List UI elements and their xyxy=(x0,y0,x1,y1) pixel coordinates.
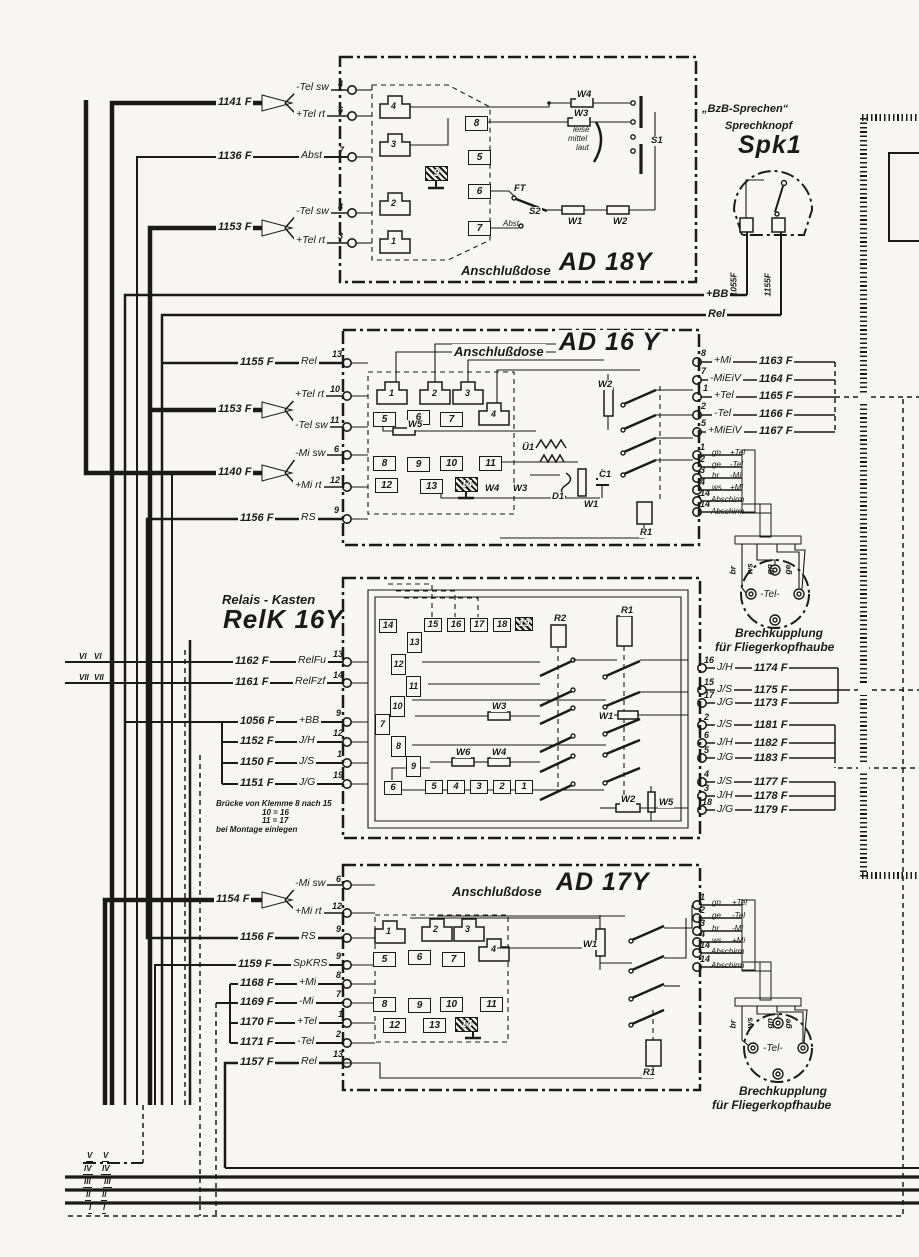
bus-mark: III xyxy=(83,1178,92,1188)
wire-color: br xyxy=(710,472,721,481)
signal-label: -MiEiV xyxy=(708,373,743,385)
wire-color: gn xyxy=(710,899,723,908)
pin-number: 2 xyxy=(336,1030,341,1039)
signal-label: J/H xyxy=(715,737,735,749)
pin-number: 7 xyxy=(701,367,706,376)
ad16y-internals xyxy=(368,344,693,538)
cable-label: 1183 F xyxy=(752,752,789,764)
kupplung-center-label: -Tel- xyxy=(761,1043,785,1054)
terminal-box-grounded: 14 xyxy=(455,477,478,492)
signal-label: +Mi xyxy=(730,937,747,946)
terminal-box: 6 xyxy=(384,781,402,795)
resistor-label: W1 xyxy=(582,940,598,950)
spk1-name: Spk1 xyxy=(735,133,805,158)
signal-label: -Mi xyxy=(297,996,316,1008)
wire-color: br xyxy=(729,566,738,575)
volume-step-label: mittel xyxy=(567,135,588,143)
bus-mark: IV xyxy=(101,1165,111,1175)
bus-mark: I xyxy=(88,1204,92,1214)
kupplung-caption: für Fliegerkopfhaube xyxy=(710,1098,833,1112)
pin-number: 7 xyxy=(339,146,344,155)
plug-number: 2 xyxy=(432,389,437,398)
terminal-box: 7 xyxy=(468,221,491,236)
pin-number: 1 xyxy=(703,384,708,393)
cable-label: 1156 F xyxy=(238,512,275,524)
signal-label: Abschirm xyxy=(709,948,746,957)
pin-number: 4 xyxy=(338,203,343,212)
box-title-prefix: Anschlußdose xyxy=(452,344,546,359)
cable-label: 1154 F xyxy=(214,893,251,905)
terminal-box: 8 xyxy=(373,997,396,1012)
terminal-box: 7 xyxy=(440,412,463,427)
pin-number: 2 xyxy=(704,713,709,722)
pin-number: 6 xyxy=(338,106,343,115)
cable-label: 1175 F xyxy=(752,684,789,696)
signal-label: Abschirm xyxy=(709,962,746,971)
bus-mark: VI xyxy=(93,653,103,663)
relay-label: R1 xyxy=(642,1068,656,1078)
signal-label: J/G xyxy=(715,697,735,709)
spk1-switch xyxy=(734,171,812,315)
hatch-gap xyxy=(858,763,869,773)
pin-number: 4 xyxy=(338,80,343,89)
cable-label: 1182 F xyxy=(752,737,789,749)
resistor-label: W2 xyxy=(620,795,636,805)
kupplung-caption: Brechkupplung xyxy=(737,1084,829,1098)
terminal-box: 9 xyxy=(408,998,431,1013)
terminal-box-grounded: 19 xyxy=(515,617,533,631)
pin-number: 10 xyxy=(330,385,340,394)
pin-number: 13 xyxy=(333,650,343,659)
signal-label: J/H xyxy=(715,662,735,674)
relay-label: R2 xyxy=(553,614,567,624)
cable-label: 1161 F xyxy=(233,676,270,688)
signal-label: -Tel sw xyxy=(293,420,330,432)
signal-label: -Tel sw xyxy=(294,206,331,218)
box-title: AD 18Y xyxy=(556,250,656,275)
terminal-box: 5 xyxy=(373,412,396,427)
relk-title: RelK 16Y xyxy=(220,606,347,632)
pin-stubs xyxy=(351,90,375,1043)
signal-label: +Mi xyxy=(297,977,318,989)
pin-number: 7 xyxy=(336,990,341,999)
signal-label: Abschirm xyxy=(709,508,746,517)
cable-label: 1179 F xyxy=(752,804,789,816)
plug-number: 2 xyxy=(433,925,438,934)
signal-label: -Tel xyxy=(712,408,733,420)
plug-number: 4 xyxy=(491,945,496,954)
signal-label: -Tel xyxy=(728,461,745,470)
spk1-quote: „BzB-Sprechen“ xyxy=(700,103,790,115)
signal-label: J/H xyxy=(297,735,317,747)
terminal-box: 11 xyxy=(480,997,503,1012)
kupplung-center-label: -Tel- xyxy=(758,589,782,600)
terminal-box: 12 xyxy=(375,478,398,493)
wire-color: gn xyxy=(710,449,723,458)
signal-label: -Tel sw xyxy=(294,82,331,94)
terminal-box: 9 xyxy=(406,756,421,777)
pin-number: 8 xyxy=(701,349,706,358)
cable-label: 1164 F xyxy=(757,373,794,385)
hatch-gap xyxy=(858,394,869,404)
terminal-box: 5 xyxy=(425,780,443,794)
mounting-note: bei Montage einlegen xyxy=(216,825,297,835)
cable-label: 1155 F xyxy=(238,356,275,368)
wire-color: gn xyxy=(766,564,775,574)
bus-rel-label: Rel xyxy=(706,308,727,320)
cable-label: 1156 F xyxy=(238,931,275,943)
signal-label: +Mi rt xyxy=(293,906,324,918)
bus-mark: I xyxy=(102,1204,106,1214)
plug-number: 3 xyxy=(391,140,396,149)
terminal-box: 5 xyxy=(373,952,396,967)
wire-color: ws xyxy=(710,937,724,946)
plug-number: 4 xyxy=(391,102,396,111)
ad17y-internals xyxy=(343,905,692,1078)
pin-number: 12 xyxy=(333,729,343,738)
terminal-pins-filled xyxy=(343,497,706,971)
cable-label: 1136 F xyxy=(216,150,253,162)
signal-label: +Mi xyxy=(712,355,733,367)
relay-label: R1 xyxy=(620,606,634,616)
terminal-box: 15 xyxy=(424,618,442,632)
signal-label: J/H xyxy=(715,790,735,802)
cable-label: 1152 F xyxy=(238,735,275,747)
signal-label: +Tel rt xyxy=(294,235,327,247)
switch-label: S1 xyxy=(650,136,664,146)
terminal-box: 5 xyxy=(468,150,491,165)
pin-number: 9 xyxy=(336,925,341,934)
spk1-cable-left: 1055F xyxy=(730,272,739,296)
terminal-box: 2 xyxy=(493,780,511,794)
plug-number: 1 xyxy=(389,389,394,398)
cable-label: 1151 F xyxy=(238,777,275,789)
terminal-box-grounded: 14 xyxy=(455,1017,478,1032)
cable-label: 1177 F xyxy=(752,776,789,788)
plug-number: 1 xyxy=(391,237,396,246)
terminal-box: 12 xyxy=(383,1018,406,1033)
wire-color: ge xyxy=(710,461,723,470)
resistor-label: W6 xyxy=(455,748,471,758)
terminal-box: 9 xyxy=(407,457,430,472)
resistor-label: W3 xyxy=(573,109,589,119)
signal-label: Rel xyxy=(299,356,319,368)
pin-number: 1 xyxy=(338,1010,343,1019)
pin-number: 1 xyxy=(337,750,342,759)
pin-number: 12 xyxy=(332,902,342,911)
pin-number: 6 xyxy=(704,731,709,740)
pin-number: 15 xyxy=(704,678,714,687)
plug-number: 4 xyxy=(491,410,496,419)
wire-color: br xyxy=(729,1020,738,1029)
cable-label: 1167 F xyxy=(757,425,794,437)
pin-number: 9 xyxy=(336,709,341,718)
signal-label: -Tel xyxy=(295,1036,316,1048)
signal-label: RS xyxy=(299,931,318,943)
adjacent-unit-box xyxy=(888,152,919,242)
signal-label: -Mi sw xyxy=(293,448,327,460)
switch-label: S2 xyxy=(528,207,542,217)
signal-label: J/S xyxy=(715,684,734,696)
pin-number: 6 xyxy=(334,445,339,454)
signal-label: Abschirm xyxy=(709,496,746,505)
box-title: AD 17Y xyxy=(553,870,653,895)
cable-label: 1150 F xyxy=(238,756,275,768)
plug-number: 3 xyxy=(465,925,470,934)
signal-label: SpKRS xyxy=(291,958,329,970)
cable-label: 1163 F xyxy=(757,355,794,367)
pin-number: 12 xyxy=(330,476,340,485)
volume-step-label: leise xyxy=(572,126,590,134)
signal-label: -Mi xyxy=(730,925,745,934)
terminal-box: 13 xyxy=(407,632,422,653)
wire-color: br xyxy=(710,925,721,934)
pin-number: 18 xyxy=(702,798,712,807)
pin-number: 13 xyxy=(332,350,342,359)
terminal-box: 16 xyxy=(447,618,465,632)
signal-label: +Tel rt xyxy=(293,389,326,401)
cable-label: 1153 F xyxy=(216,403,253,415)
pin-number: 4 xyxy=(704,770,709,779)
volume-step-label: laut xyxy=(575,144,590,152)
terminal-box: 8 xyxy=(465,116,488,131)
bus-mark: VII xyxy=(78,674,90,684)
cable-label: 1174 F xyxy=(752,662,789,674)
signal-label: RS xyxy=(299,512,318,524)
cable-label: 1153 F xyxy=(216,221,253,233)
resistor-label: W3 xyxy=(512,484,528,494)
terminal-box: 7 xyxy=(442,952,465,967)
signal-label: -Mi sw xyxy=(293,878,327,890)
bus-mark: V xyxy=(86,1152,93,1162)
box-title-prefix: Anschlußdose xyxy=(450,884,544,899)
capacitor-label: C1 xyxy=(598,470,612,480)
choke-label: D1 xyxy=(551,492,565,502)
cable-label: 1173 F xyxy=(752,697,789,709)
signal-label: J/S xyxy=(715,719,734,731)
cable-label: 1170 F xyxy=(238,1016,275,1028)
cable-label: 1159 F xyxy=(236,958,273,970)
signal-label: J/G xyxy=(715,804,735,816)
cable-label: 1140 F xyxy=(216,466,253,478)
terminal-box: 10 xyxy=(440,456,463,471)
terminal-box: 4 xyxy=(447,780,465,794)
terminal-box: 6 xyxy=(468,184,491,199)
terminal-box: 11 xyxy=(406,676,421,697)
pin-number: 3 xyxy=(700,919,705,928)
signal-label: +Tel xyxy=(295,1016,319,1028)
signal-label: Rel xyxy=(299,1056,319,1068)
signal-label: J/S xyxy=(297,756,316,768)
terminal-box: 14 xyxy=(379,619,397,633)
bus-mark: III xyxy=(103,1178,112,1188)
relay-label: R1 xyxy=(639,528,653,538)
signal-label: J/G xyxy=(715,752,735,764)
terminal-box: 6 xyxy=(408,950,431,965)
bus-bb-label: +BB xyxy=(704,288,730,300)
terminal-box-grounded: 9 xyxy=(425,166,448,181)
cable-label: 1056 F xyxy=(238,715,276,727)
signal-label: -Mi xyxy=(728,472,743,481)
terminal-box: 10 xyxy=(390,696,405,717)
terminal-box: 13 xyxy=(423,1018,446,1033)
pin-number: 6 xyxy=(336,875,341,884)
signal-label: RelFu xyxy=(296,655,328,667)
cable-label: 1169 F xyxy=(238,996,275,1008)
signal-label: +Tel xyxy=(712,390,736,402)
terminal-box: 8 xyxy=(373,456,396,471)
box-title-prefix: Anschlußdose xyxy=(459,263,553,278)
signal-label: +Tel xyxy=(730,899,749,908)
cable-label: 1157 F xyxy=(238,1056,275,1068)
wire-color: ws xyxy=(746,1017,755,1028)
terminal-box: 7 xyxy=(375,714,390,735)
switch-label: Abst xyxy=(502,220,520,228)
terminal-box: 18 xyxy=(493,618,511,632)
kupplung-caption: für Fliegerkopfhaube xyxy=(713,640,836,654)
signal-label: J/S xyxy=(715,776,734,788)
bus-mark: IV xyxy=(83,1165,93,1175)
pin-number: 19 xyxy=(333,771,343,780)
terminal-box: 12 xyxy=(391,654,406,675)
box-title: AD 16 Y xyxy=(556,330,663,355)
pin-number: 3 xyxy=(700,466,705,475)
cable-label: 1168 F xyxy=(238,977,275,989)
cable-label: 1166 F xyxy=(757,408,794,420)
pin-number: 1 xyxy=(700,443,705,452)
signal-label: +Tel xyxy=(728,449,747,458)
panel-hatch-bottom xyxy=(862,872,919,879)
pin-number: 11 xyxy=(330,416,339,425)
resistor-label: W5 xyxy=(658,798,674,808)
pin-number: 9 xyxy=(334,506,339,515)
bus-mark: II xyxy=(101,1191,107,1201)
pin-number: 17 xyxy=(704,691,714,700)
signal-label: Abst xyxy=(299,150,324,162)
terminal-box: 11 xyxy=(479,456,502,471)
pin-number: 3 xyxy=(704,784,709,793)
bus-mark: VII xyxy=(93,674,105,684)
plug-number: 1 xyxy=(386,927,391,936)
plug-number: 3 xyxy=(465,389,470,398)
kupplung-caption: Brechkupplung xyxy=(733,626,825,640)
terminal-box: 1 xyxy=(515,780,533,794)
signal-label: RelFzf xyxy=(293,676,327,688)
pin-number: 3 xyxy=(338,232,343,241)
pin-number: 4 xyxy=(700,930,705,939)
pin-number: 13 xyxy=(333,1050,343,1059)
resistor-label: W4 xyxy=(484,484,500,494)
spk1-cable-right: 1155F xyxy=(764,273,773,296)
cable-label: 1178 F xyxy=(752,790,789,802)
pin-number: 14 xyxy=(333,671,343,680)
pin-number: 4 xyxy=(700,478,705,487)
pin-number: 5 xyxy=(704,746,709,755)
wiring-diagram-sheet: 1141 F -Tel sw 4 +Tel rt 6 1136 F Abst 7… xyxy=(0,0,919,1257)
pin-number: 2 xyxy=(700,906,705,915)
signal-label: +BB xyxy=(297,715,321,727)
terminal-box: 10 xyxy=(440,997,463,1012)
hatch-gap xyxy=(858,685,869,695)
pin-number: 2 xyxy=(701,402,706,411)
cable-label: 1171 F xyxy=(238,1036,275,1048)
resistor-label: W1 xyxy=(583,500,599,510)
pin-number: 9 xyxy=(336,952,341,961)
plug-number: 2 xyxy=(391,199,396,208)
signal-label: -Tel xyxy=(730,912,747,921)
terminal-box: 17 xyxy=(470,618,488,632)
resistor-label: W3 xyxy=(491,702,507,712)
switch-label: FT xyxy=(513,184,527,194)
cable-label: 1141 F xyxy=(216,96,253,108)
pin-number: 16 xyxy=(704,656,714,665)
pin-number: 1 xyxy=(700,893,705,902)
wire-color: ge xyxy=(784,1019,793,1029)
wire-color: gn xyxy=(766,1018,775,1028)
bus-mark: V xyxy=(102,1152,109,1162)
signal-label: +MiEiV xyxy=(706,425,744,437)
panel-hatch-top xyxy=(862,114,919,121)
cable-label: 1181 F xyxy=(752,719,789,731)
wire-color: ge xyxy=(784,565,793,575)
signal-label: +Mi rt xyxy=(293,480,324,492)
cable-label: 1162 F xyxy=(233,655,270,667)
transformer-label: Ü1 xyxy=(521,443,535,453)
resistor-label: W2 xyxy=(612,217,628,227)
bus-mark: VI xyxy=(78,653,88,663)
terminal-box: 3 xyxy=(470,780,488,794)
pin-number: 8 xyxy=(336,971,341,980)
ad18y-internals xyxy=(372,85,655,260)
resistor-label: W1 xyxy=(567,217,583,227)
wire-color: ge xyxy=(710,912,723,921)
terminal-box: 8 xyxy=(391,736,406,757)
signal-label: J/G xyxy=(297,777,317,789)
kupplung-1 xyxy=(741,544,809,628)
bus-mark: II xyxy=(85,1191,91,1201)
terminal-box: 13 xyxy=(420,479,443,494)
resistor-label: W4 xyxy=(491,748,507,758)
pin-number: 2 xyxy=(700,455,705,464)
wire-color: ws xyxy=(710,484,724,493)
resistor-label: W2 xyxy=(597,380,613,390)
bus-lines xyxy=(65,1163,919,1216)
cable-label: 1165 F xyxy=(757,390,794,402)
resistor-label: W1 xyxy=(598,712,614,722)
resistor-label: W5 xyxy=(407,420,423,430)
resistor-label: W4 xyxy=(576,90,592,100)
signal-label: +Mi xyxy=(728,484,745,493)
wire-color: ws xyxy=(746,563,755,574)
signal-label: +Tel rt xyxy=(294,109,327,121)
